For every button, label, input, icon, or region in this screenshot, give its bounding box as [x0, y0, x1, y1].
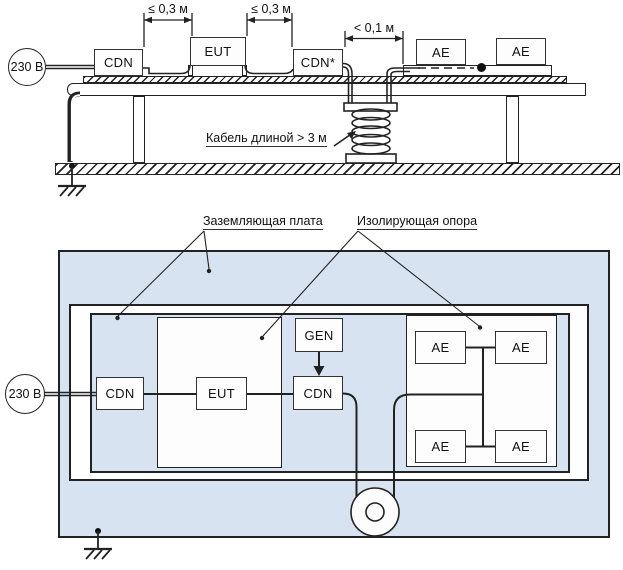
eut-box-plan: EUT: [196, 377, 247, 410]
table-earth-strap: [70, 94, 80, 162]
eut-foot-right: [242, 65, 247, 76]
eut-foot-left: [188, 65, 193, 76]
mains-source-plan: 230 В: [5, 374, 45, 414]
ae2-box-top-label: AE: [512, 44, 530, 59]
cable-note-arrow: [334, 131, 356, 146]
ae-bottom-right-label: AE: [512, 439, 530, 454]
ground-plate-label: Заземляющая плата: [203, 214, 323, 230]
ae1-box-top-label: AE: [432, 45, 450, 60]
mains-cable-top: [46, 66, 96, 69]
mains-source-top: 230 В: [8, 48, 46, 86]
dimension-left-label: ≤ 0,3 м: [139, 2, 197, 16]
gen-box-plan: GEN: [295, 318, 343, 352]
ae-top-left-label: AE: [432, 340, 450, 355]
mains-source-top-label: 230 В: [11, 60, 44, 74]
ae-top-left-box: AE: [415, 331, 466, 364]
ae-bottom-left-box: AE: [415, 430, 466, 463]
eut-box-top-label: EUT: [205, 44, 232, 59]
cdn-mid-box-plan-label: CDN: [303, 386, 332, 401]
dimension-mid: [247, 13, 292, 47]
dimension-right: [345, 31, 403, 64]
cdn-mid-box-plan: CDN: [293, 376, 343, 410]
table-top-board: [67, 83, 586, 96]
grounding-plate-strip: [83, 76, 567, 83]
ae-insulating-support-side: [403, 65, 552, 76]
ae-bottom-left-label: AE: [432, 439, 450, 454]
cdn-star-box-top: CDN*: [293, 49, 343, 76]
cdn-left-box-plan: CDN: [96, 377, 144, 410]
dimension-right-label: < 0,1 м: [345, 21, 403, 35]
cdn-star-box-top-label: CDN*: [301, 55, 335, 70]
cable-length-note: Кабель длиной > 3 м: [206, 131, 327, 147]
ae-top-right-label: AE: [512, 340, 530, 355]
ae-top-right-box: AE: [495, 331, 547, 364]
cdn-box-top: CDN: [94, 49, 143, 76]
table-leg-left: [133, 96, 145, 163]
test-setup-figure: 230 В CDN EUT CDN* AE AE ≤ 0,3 м ≤ 0,3 м…: [0, 0, 623, 570]
eut-box-top: EUT: [190, 37, 246, 66]
gen-box-plan-label: GEN: [304, 328, 333, 343]
dimension-left: [144, 13, 192, 47]
coiled-cable-side: [344, 103, 397, 163]
ground-reference-plane-side: [55, 163, 620, 175]
cdn-left-box-plan-label: CDN: [105, 386, 134, 401]
wire-cdn-eut: [143, 66, 190, 74]
dimension-mid-label: ≤ 0,3 м: [242, 2, 300, 16]
cdn-box-top-label: CDN: [104, 55, 133, 70]
table-leg-right: [506, 96, 519, 163]
wire-eut-cdnstar: [245, 66, 293, 74]
ae-bottom-right-box: AE: [495, 430, 547, 463]
eut-box-plan-label: EUT: [208, 386, 235, 401]
mains-source-plan-label: 230 В: [9, 387, 42, 401]
insulating-support-label: Изолирующая опора: [357, 214, 477, 230]
ae1-box-top: AE: [416, 39, 466, 65]
ae2-box-top: AE: [496, 38, 546, 65]
